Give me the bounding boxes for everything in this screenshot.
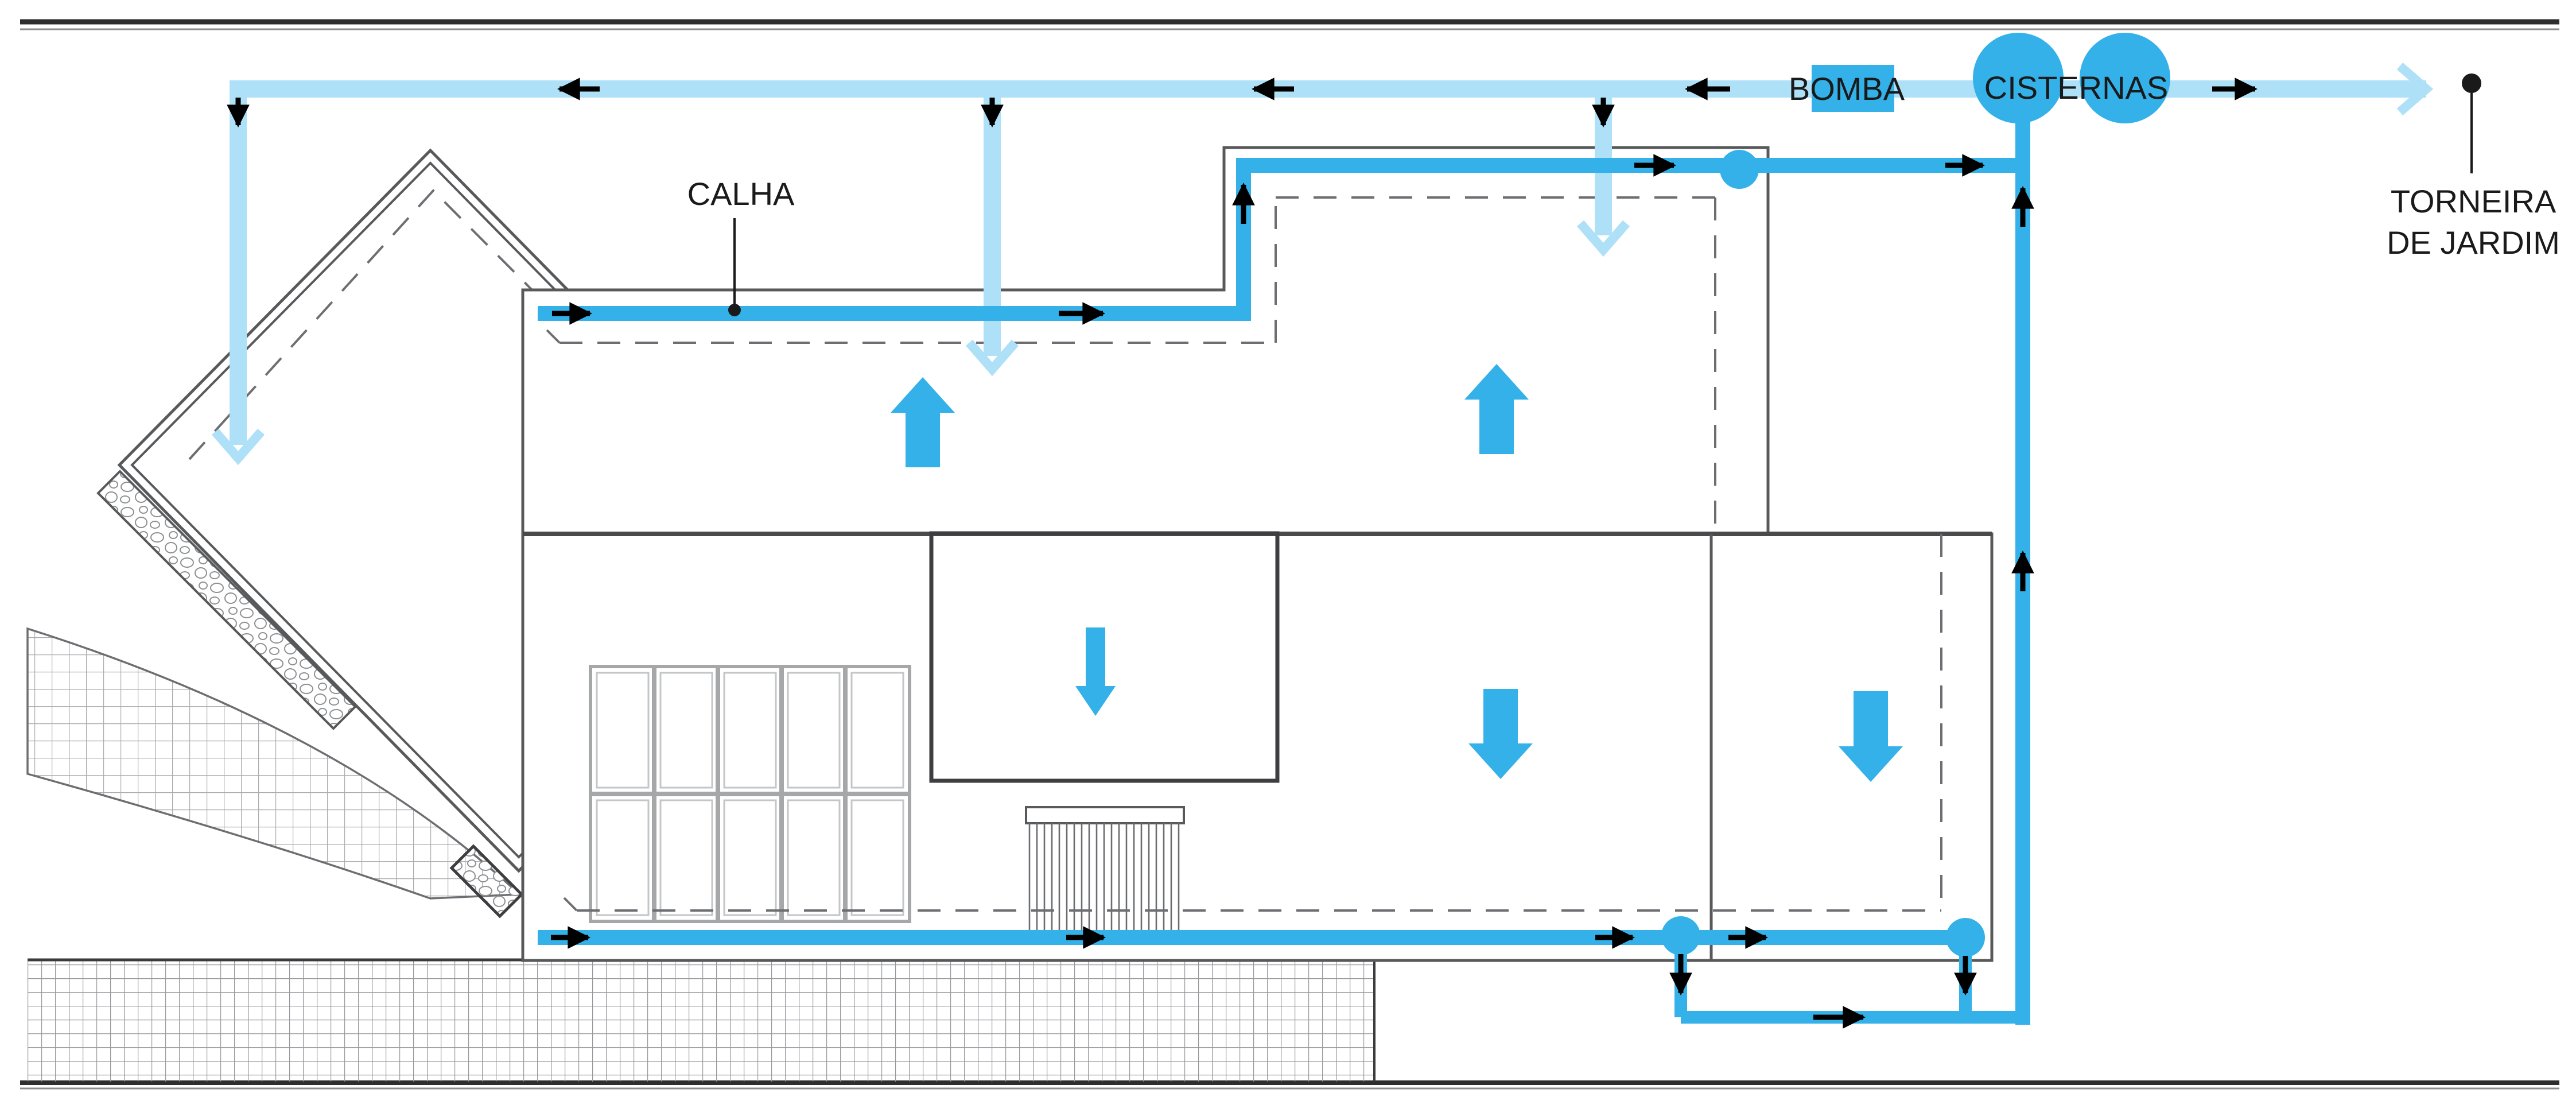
paved-strip <box>28 960 1374 1082</box>
garden-tap-symbol <box>2462 73 2481 173</box>
junction-dot-top <box>1720 150 1759 189</box>
garden-tap-dot <box>2462 73 2481 93</box>
page-border-bottom <box>20 1083 2559 1088</box>
page-border-top <box>20 22 2559 29</box>
label-cisternas: CISTERNAS <box>1984 69 2169 106</box>
label-bomba: BOMBA <box>1789 71 1905 107</box>
junction-dot-2 <box>1946 918 1985 957</box>
label-torneira-line1: TORNEIRA <box>2391 183 2556 219</box>
floorplan-rainwater-diagram: CALHA BOMBA CISTERNAS TORNEIRA DE JARDIM <box>0 0 2576 1112</box>
diagram-svg: CALHA BOMBA CISTERNAS TORNEIRA DE JARDIM <box>0 0 2576 1112</box>
junction-dot-1 <box>1661 916 1700 955</box>
label-calha: CALHA <box>687 176 795 212</box>
window-grid <box>590 667 910 921</box>
label-torneira-line2: DE JARDIM <box>2387 224 2560 261</box>
